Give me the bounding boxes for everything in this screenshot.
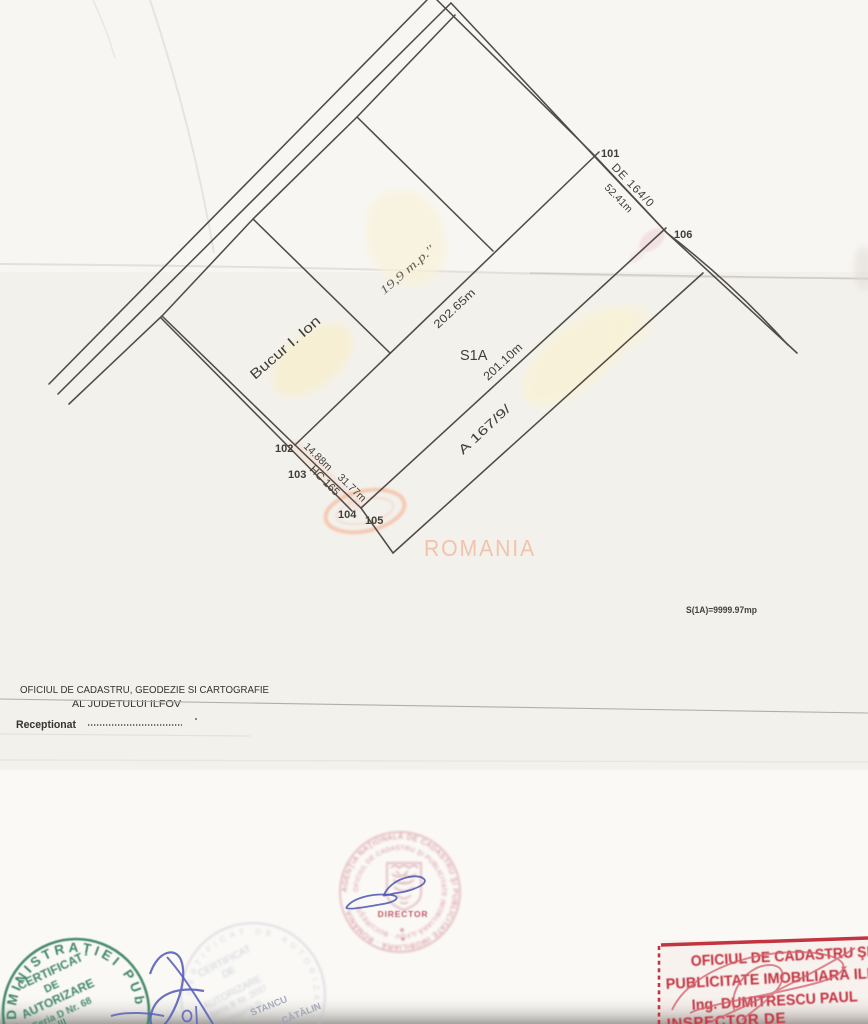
svg-text:OFICIUL DE CADASTRU, GEODEZIE: OFICIUL DE CADASTRU, GEODEZIE SI CARTOGR… (20, 684, 269, 696)
svg-text:102: 102 (275, 443, 293, 455)
svg-text:S(1A)=9999.97mp: S(1A)=9999.97mp (686, 605, 757, 616)
svg-text:AL JUDETULUI ILFOV: AL JUDETULUI ILFOV (72, 698, 181, 710)
svg-text:103: 103 (288, 469, 306, 481)
svg-text:106: 106 (674, 229, 692, 241)
svg-text:105: 105 (365, 515, 383, 527)
svg-text:ROMANIA: ROMANIA (424, 535, 536, 561)
svg-text:101: 101 (601, 148, 619, 160)
svg-text:104: 104 (338, 509, 357, 521)
svg-text:S1A: S1A (460, 348, 488, 364)
svg-text:DIRECTOR: DIRECTOR (378, 909, 429, 919)
svg-text:Receptionat: Receptionat (16, 719, 76, 731)
